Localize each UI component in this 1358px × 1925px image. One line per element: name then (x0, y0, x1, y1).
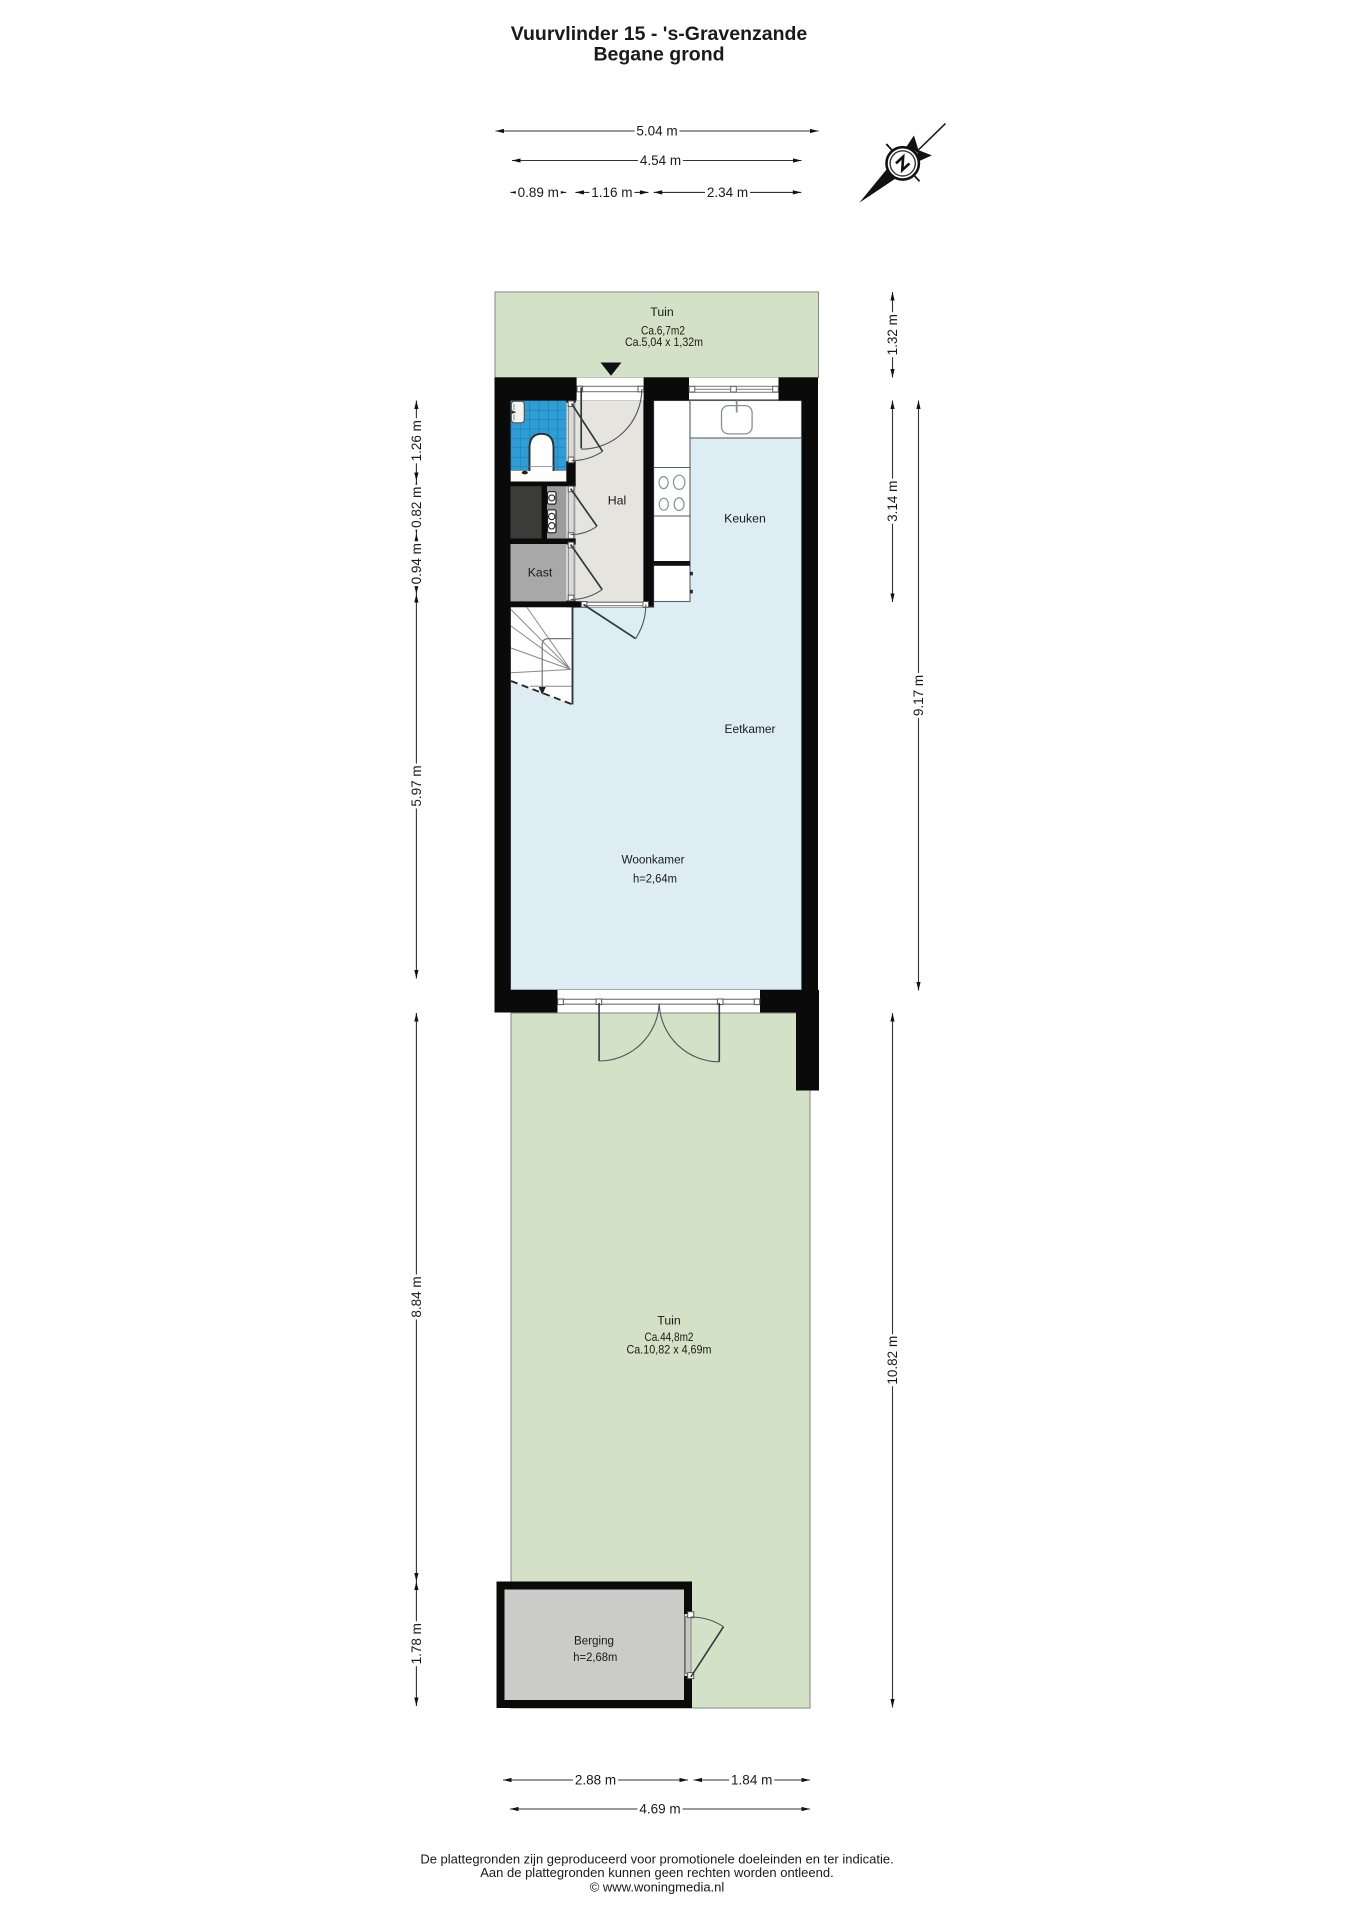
svg-text:Aan de plattegronden kunnen ge: Aan de plattegronden kunnen geen rechten… (480, 1865, 833, 1880)
svg-text:1.16 m: 1.16 m (591, 185, 632, 200)
svg-text:9.17 m: 9.17 m (911, 675, 926, 716)
svg-text:0.89 m: 0.89 m (518, 185, 559, 200)
svg-text:Hal: Hal (608, 494, 626, 508)
svg-text:2.88 m: 2.88 m (575, 1773, 616, 1788)
svg-text:0.82 m: 0.82 m (409, 487, 424, 528)
svg-text:h=2,68m: h=2,68m (573, 1650, 617, 1664)
svg-text:Tuin: Tuin (657, 1314, 681, 1328)
svg-text:1.26 m: 1.26 m (409, 420, 424, 461)
svg-text:Eetkamer: Eetkamer (725, 722, 776, 736)
svg-text:2.34 m: 2.34 m (707, 185, 748, 200)
svg-text:5.04 m: 5.04 m (636, 124, 677, 139)
svg-text:Begane grond: Begane grond (593, 44, 724, 66)
svg-text:Kast: Kast (528, 566, 553, 580)
svg-text:Ca.10,82 x 4,69m: Ca.10,82 x 4,69m (627, 1342, 712, 1356)
svg-text:3.14 m: 3.14 m (885, 481, 900, 522)
svg-text:Keuken: Keuken (724, 512, 766, 526)
svg-text:5.97 m: 5.97 m (409, 765, 424, 806)
svg-text:4.69 m: 4.69 m (639, 1802, 680, 1817)
svg-text:© www.woningmedia.nl: © www.woningmedia.nl (590, 1880, 725, 1895)
svg-text:Vuurvlinder 15 - 's-Gravenzand: Vuurvlinder 15 - 's-Gravenzande (511, 23, 808, 45)
svg-text:4.54 m: 4.54 m (640, 153, 681, 168)
svg-text:1.78 m: 1.78 m (409, 1623, 424, 1664)
svg-text:1.84 m: 1.84 m (731, 1773, 772, 1788)
svg-text:h=2,64m: h=2,64m (633, 872, 677, 886)
svg-text:8.84 m: 8.84 m (409, 1276, 424, 1317)
svg-text:0.94 m: 0.94 m (409, 543, 424, 584)
svg-text:Ca.5,04 x 1,32m: Ca.5,04 x 1,32m (625, 335, 703, 349)
svg-text:Berging: Berging (574, 1634, 614, 1648)
svg-text:Woonkamer: Woonkamer (622, 853, 685, 867)
svg-text:10.82 m: 10.82 m (885, 1336, 900, 1385)
svg-text:1.32 m: 1.32 m (885, 314, 900, 355)
svg-text:Tuin: Tuin (650, 305, 674, 319)
